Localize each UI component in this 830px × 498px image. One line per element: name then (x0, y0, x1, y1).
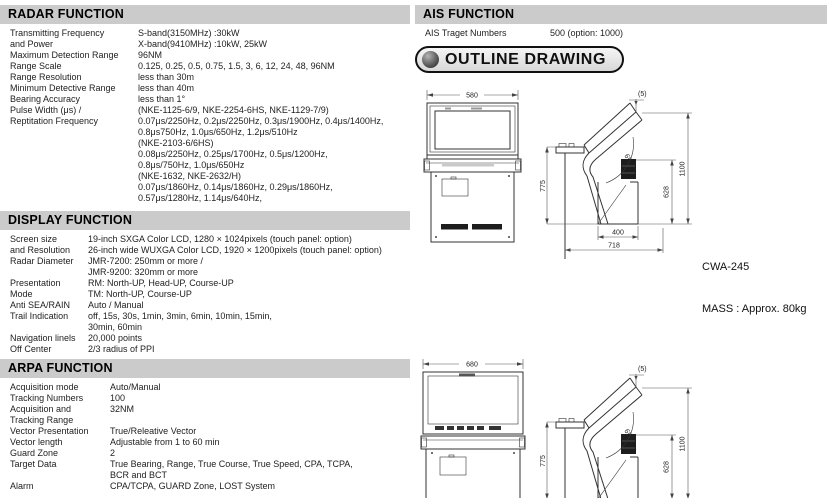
spec-row: Pulse Width (μs) / Reptitation Frequency… (10, 105, 410, 204)
spec-row: Bearing Accuracyless than 1° (10, 94, 410, 105)
display-function-header: DISPLAY FUNCTION (0, 211, 410, 230)
spec-row: Screen size and Resolution19-inch SXGA C… (10, 234, 410, 256)
dim-top-offset: (5) (638, 91, 647, 98)
spec-value: JMR-7200: 250mm or more / JMR-9200: 320m… (88, 256, 410, 278)
spec-row: Radar DiameterJMR-7200: 250mm or more / … (10, 256, 410, 278)
spec-row: Target DataTrue Bearing, Range, True Cou… (10, 459, 410, 481)
drawing-row-cwa-246: 680 (415, 356, 827, 498)
spec-label: Anti SEA/RAIN (10, 300, 88, 311)
dim-total-height: 1100 (680, 436, 687, 451)
dim-front-width: 580 (466, 93, 478, 100)
spec-value: True/Releative Vector (110, 426, 410, 437)
arpa-function-spec-list: Acquisition modeAuto/ManualTracking Numb… (0, 378, 410, 492)
spec-value: (NKE-1125-6/9, NKE-2254-6HS, NKE-1129-7/… (138, 105, 410, 204)
spec-row: Maximum Detection Range96NM (10, 50, 410, 61)
dim-front-height: 775 (540, 455, 547, 467)
spec-label: AIS Traget Numbers (425, 28, 550, 39)
spec-value: 2 (110, 448, 410, 459)
right-column: AIS FUNCTION AIS Traget Numbers500 (opti… (415, 5, 827, 498)
spec-row: Guard Zone2 (10, 448, 410, 459)
outline-drawing-title: OUTLINE DRAWING (445, 50, 606, 69)
spec-row: Navigation linels20,000 points (10, 333, 410, 344)
radar-function-header: RADAR FUNCTION (0, 5, 410, 24)
spec-row: Minimum Detective Rangeless than 40m (10, 83, 410, 94)
spec-value: RM: North-UP, Head-UP, Course-UP TM: Nor… (88, 278, 410, 300)
spec-value: True Bearing, Range, True Course, True S… (110, 459, 410, 481)
front-view-cwa-246: 680 (415, 356, 530, 498)
spec-sheet-page: RADAR FUNCTION Transmitting Frequency an… (0, 0, 830, 498)
spec-label: Range Scale (10, 61, 138, 72)
spec-label: Minimum Detective Range (10, 83, 138, 94)
spec-label: Vector length (10, 437, 110, 448)
spec-value: 96NM (138, 50, 410, 61)
spec-value: 0.125, 0.25, 0.5, 0.75, 1.5, 3, 6, 12, 2… (138, 61, 410, 72)
spec-value: 32NM (110, 404, 410, 426)
ais-function-spec-list: AIS Traget Numbers500 (option: 1000) (415, 24, 827, 39)
spec-row: Anti SEA/RAINAuto / Manual (10, 300, 410, 311)
dim-base-depth: 400 (612, 230, 624, 237)
spec-row: Vector PresentationTrue/Releative Vector (10, 426, 410, 437)
side-view-cwa-246: 65 (5) 775 1100 628 400 718 (538, 362, 698, 498)
spec-value: less than 30m (138, 72, 410, 83)
spec-value: 100 (110, 393, 410, 404)
dim-overall-depth: 718 (608, 243, 620, 250)
spec-value: 19-inch SXGA Color LCD, 1280 × 1024pixel… (88, 234, 410, 256)
spec-row: Range Resolutionless than 30m (10, 72, 410, 83)
spec-value: off, 15s, 30s, 1min, 3min, 6min, 10min, … (88, 311, 410, 333)
spec-label: Acquisition and Tracking Range (10, 404, 110, 426)
spec-row: Presentation ModeRM: North-UP, Head-UP, … (10, 278, 410, 300)
spec-label: Screen size and Resolution (10, 234, 88, 256)
dim-front-height: 775 (540, 180, 547, 192)
spec-label: Trail Indication (10, 311, 88, 333)
left-column: RADAR FUNCTION Transmitting Frequency an… (0, 5, 410, 492)
spec-value: 20,000 points (88, 333, 410, 344)
spec-row: Acquisition modeAuto/Manual (10, 382, 410, 393)
dim-total-height: 1100 (680, 161, 687, 176)
spec-label: Radar Diameter (10, 256, 88, 278)
spec-value: Auto / Manual (88, 300, 410, 311)
spec-label: Guard Zone (10, 448, 110, 459)
spec-row: Tracking Numbers100 (10, 393, 410, 404)
outline-drawing-banner: OUTLINE DRAWING (415, 46, 624, 73)
caption-cwa-245: CWA-245 MASS : Approx. 80kg (702, 232, 807, 344)
spec-label: Tracking Numbers (10, 393, 110, 404)
spec-label: Navigation linels (10, 333, 88, 344)
spec-row: Trail Indicationoff, 15s, 30s, 1min, 3mi… (10, 311, 410, 333)
arpa-function-header: ARPA FUNCTION (0, 359, 410, 378)
spec-value: 2/3 radius of PPI (88, 344, 410, 355)
model-name: CWA-245 (702, 260, 807, 274)
radar-function-spec-list: Transmitting Frequency and PowerS-band(3… (0, 24, 410, 204)
display-function-spec-list: Screen size and Resolution19-inch SXGA C… (0, 230, 410, 355)
spec-label: Acquisition mode (10, 382, 110, 393)
spec-label: Presentation Mode (10, 278, 88, 300)
spec-value: CPA/TCPA, GUARD Zone, LOST System (110, 481, 410, 492)
spec-label: Bearing Accuracy (10, 94, 138, 105)
spec-label: Off Center (10, 344, 88, 355)
sphere-bullet-icon (422, 51, 439, 68)
dim-mid-height: 628 (664, 461, 671, 473)
dim-front-width: 680 (466, 362, 478, 369)
spec-label: Target Data (10, 459, 110, 481)
spec-row: Off Center2/3 radius of PPI (10, 344, 410, 355)
spec-row: AIS Traget Numbers500 (option: 1000) (425, 28, 827, 39)
drawing-row-cwa-245: 580 (415, 87, 827, 344)
spec-value: less than 40m (138, 83, 410, 94)
spec-value: Adjustable from 1 to 60 min (110, 437, 410, 448)
model-mass: MASS : Approx. 80kg (702, 302, 807, 316)
spec-label: Alarm (10, 481, 110, 492)
spec-label: Pulse Width (μs) / Reptitation Frequency (10, 105, 138, 204)
spec-value: S-band(3150MHz) :30kW X-band(9410MHz) :1… (138, 28, 410, 50)
front-view-cwa-245: 580 (415, 87, 530, 247)
spec-label: Vector Presentation (10, 426, 110, 437)
spec-row: AlarmCPA/TCPA, GUARD Zone, LOST System (10, 481, 410, 492)
spec-value: 500 (option: 1000) (550, 28, 827, 39)
side-view-cwa-245: 65 (5) 775 1100 628 400 (538, 87, 698, 262)
spec-label: Maximum Detection Range (10, 50, 138, 61)
spec-value: less than 1° (138, 94, 410, 105)
spec-label: Transmitting Frequency and Power (10, 28, 138, 50)
spec-row: Vector lengthAdjustable from 1 to 60 min (10, 437, 410, 448)
ais-function-header: AIS FUNCTION (415, 5, 827, 24)
dim-top-offset: (5) (638, 366, 647, 373)
spec-row: Range Scale0.125, 0.25, 0.5, 0.75, 1.5, … (10, 61, 410, 72)
spec-row: Acquisition and Tracking Range32NM (10, 404, 410, 426)
spec-value: Auto/Manual (110, 382, 410, 393)
dim-mid-height: 628 (664, 186, 671, 198)
spec-label: Range Resolution (10, 72, 138, 83)
spec-row: Transmitting Frequency and PowerS-band(3… (10, 28, 410, 50)
